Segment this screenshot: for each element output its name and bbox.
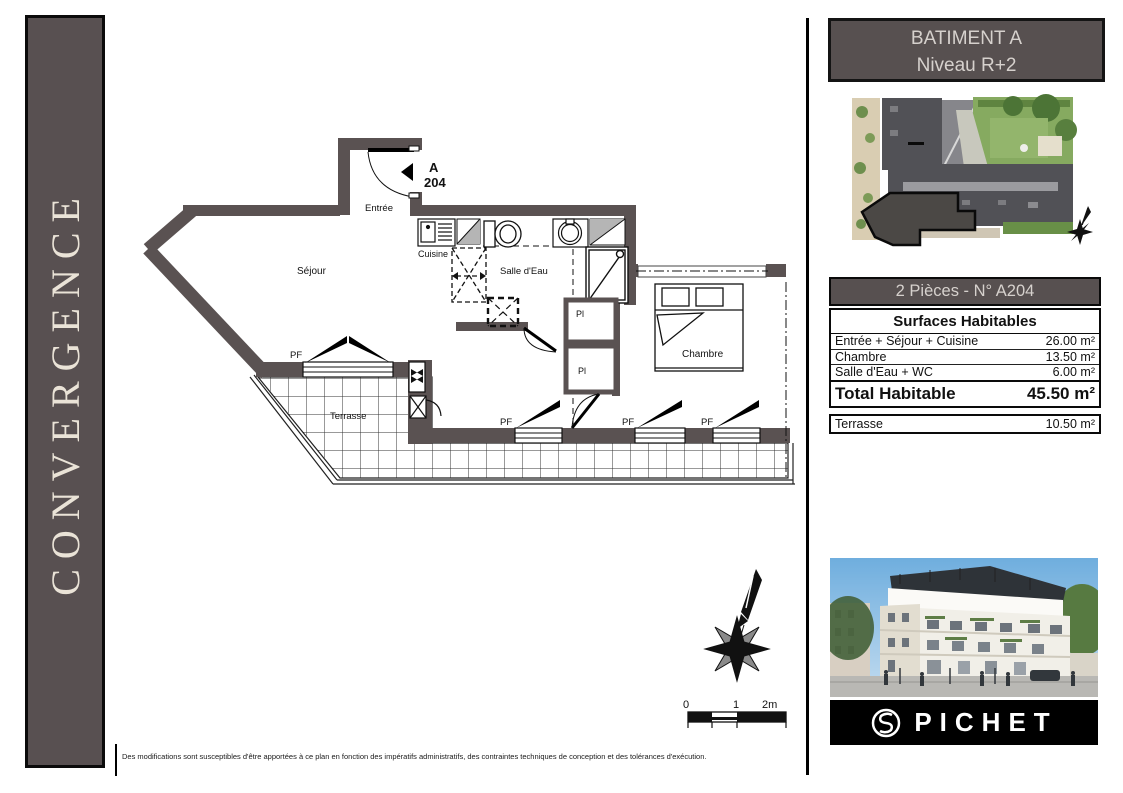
car [1030,670,1060,681]
duct2-icon [590,219,625,245]
main-building [880,566,1070,676]
shower-icon [586,247,628,303]
bathroom-door [524,328,556,352]
label-cuisine: Cuisine [418,249,448,259]
label-terrasse: Terrasse [330,411,366,422]
row-value: 13.50 m² [1046,350,1095,365]
bedroom-door [572,394,599,428]
unit-marker-number: 204 [424,175,446,190]
building-level: Niveau R+2 [831,52,1102,79]
label-salle-eau: Salle d'Eau [500,266,548,277]
closet-1-label: Pl [576,309,584,319]
south-windows [515,400,760,443]
sejour-window [303,336,393,377]
project-banner: CONVERGENCE [25,15,105,768]
surface-table: 2 Pièces - N° A204 Surfaces Habitables E… [829,277,1101,434]
scale-2m: 2m [762,699,777,711]
table-subtitle: Surfaces Habitables [831,310,1099,334]
building-photo [830,558,1098,697]
closet-2 [566,346,616,392]
closet-1 [566,300,616,342]
wall-diagonal-upper [148,211,192,249]
scale-1: 1 [733,699,739,711]
plan-sheet: CONVERGENCE [0,0,1123,793]
scale-bar: 0 1 2m [683,699,786,728]
row-label: Entrée + Séjour + Cuisine [835,334,978,349]
toilet-icon [484,221,521,247]
radiator-icon [409,362,441,418]
label-chambre: Chambre [682,349,724,360]
row-value: 6.00 m² [1053,365,1095,380]
row-value: 26.00 m² [1046,334,1095,349]
north-arrow-icon [705,569,769,681]
total-value: 45.50 m² [1027,384,1095,404]
table-row: Chambre 13.50 m² [831,350,1099,366]
scale-0: 0 [683,699,689,711]
table-row: Salle d'Eau + WC 6.00 m² [831,365,1099,380]
disclaimer-text: Des modifications sont susceptibles d'êt… [122,752,762,761]
floor-plan: A 204 [110,118,810,508]
label-sejour: Séjour [297,266,327,277]
brand-name: PICHET [914,707,1057,738]
unit-marker-arrow-icon [401,163,413,181]
compass-and-scale: 0 1 2m [665,560,800,735]
site-plan-image [838,92,1102,257]
washbasin-icon [553,219,588,247]
pichet-logo-icon [870,707,902,739]
wall-diagonal-lower [148,249,266,374]
table-terrace-row: Terrasse 10.50 m² [829,414,1101,434]
terrace-label: Terrasse [835,417,883,431]
label-pf-3: PF [622,417,634,428]
building-header: BATIMENT A Niveau R+2 [828,18,1105,82]
label-pf-4: PF [701,417,713,428]
building-name: BATIMENT A [831,25,1102,52]
closet-2-label: Pl [578,366,586,376]
unit-marker-letter: A [429,160,439,175]
total-label: Total Habitable [835,384,956,404]
footer-tick [115,744,117,776]
label-pf-2: PF [500,417,512,428]
label-pf-1: PF [290,350,302,361]
duct-icon [457,219,480,244]
kitchen-sink-icon [418,219,455,246]
floor-trap-icon [488,298,518,326]
row-label: Chambre [835,350,886,365]
brand-logo: PICHET [830,700,1098,745]
table-total-row: Total Habitable 45.50 m² [831,380,1099,406]
terrace-value: 10.50 m² [1046,417,1095,431]
label-entree: Entrée [365,203,393,214]
table-row: Entrée + Séjour + Cuisine 26.00 m² [831,334,1099,350]
row-label: Salle d'Eau + WC [835,365,933,380]
unit-title: 2 Pièces - N° A204 [829,277,1101,306]
project-name: CONVERGENCE [42,188,89,596]
